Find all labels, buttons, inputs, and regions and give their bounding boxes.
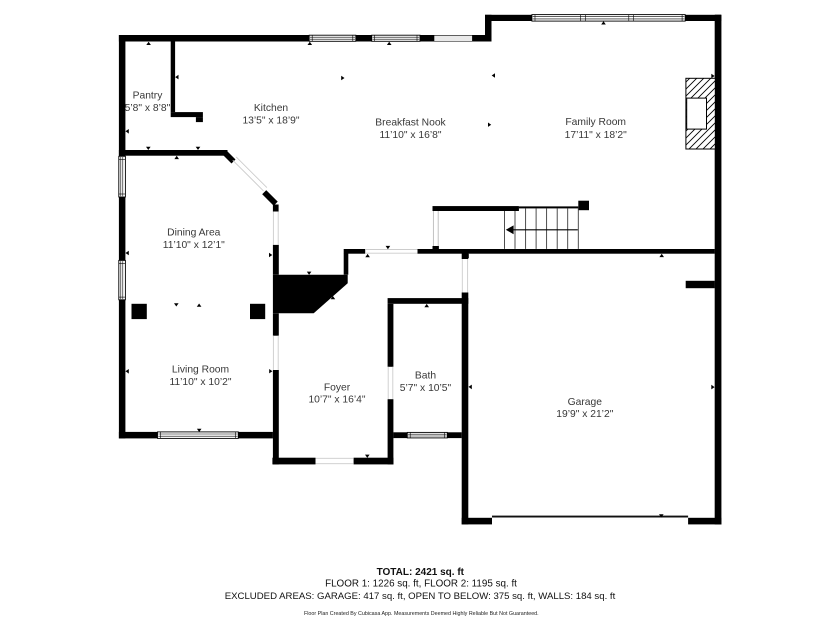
svg-text:5’8" x 8’8": 5’8" x 8’8" [125, 103, 171, 114]
svg-text:TOTAL: 2421 sq. ft: TOTAL: 2421 sq. ft [377, 567, 465, 578]
svg-text:19’9" x 21’2": 19’9" x 21’2" [556, 409, 613, 420]
svg-text:Garage: Garage [568, 397, 603, 408]
svg-text:11’10" x 16’8": 11’10" x 16’8" [379, 130, 441, 141]
svg-text:13’5" x 18’9": 13’5" x 18’9" [242, 116, 299, 127]
svg-text:Pantry: Pantry [133, 90, 164, 101]
svg-text:Floor Plan Created By Cubicasa: Floor Plan Created By Cubicasa App. Meas… [304, 611, 539, 617]
svg-text:11’10" x 12’1": 11’10" x 12’1" [163, 240, 225, 251]
svg-text:Foyer: Foyer [324, 382, 351, 393]
svg-text:5’7" x 10’5": 5’7" x 10’5" [400, 383, 452, 394]
svg-text:11’10" x 10’2": 11’10" x 10’2" [169, 377, 231, 388]
svg-text:Bath: Bath [415, 371, 436, 382]
svg-text:Breakfast Nook: Breakfast Nook [375, 117, 446, 128]
svg-text:Family Room: Family Room [565, 117, 626, 128]
svg-text:10’7" x 16’4": 10’7" x 16’4" [308, 395, 365, 406]
svg-text:FLOOR 1: 1226 sq. ft, FLOOR 2:: FLOOR 1: 1226 sq. ft, FLOOR 2: 1195 sq. … [325, 579, 517, 590]
svg-text:17’11" x 18’2": 17’11" x 18’2" [565, 130, 627, 141]
svg-text:Living Room: Living Room [172, 365, 229, 376]
svg-text:Dining Area: Dining Area [167, 228, 221, 239]
svg-text:EXCLUDED AREAS: GARAGE: 417 sq: EXCLUDED AREAS: GARAGE: 417 sq. ft, OPEN… [225, 591, 616, 602]
svg-text:Kitchen: Kitchen [254, 103, 289, 114]
